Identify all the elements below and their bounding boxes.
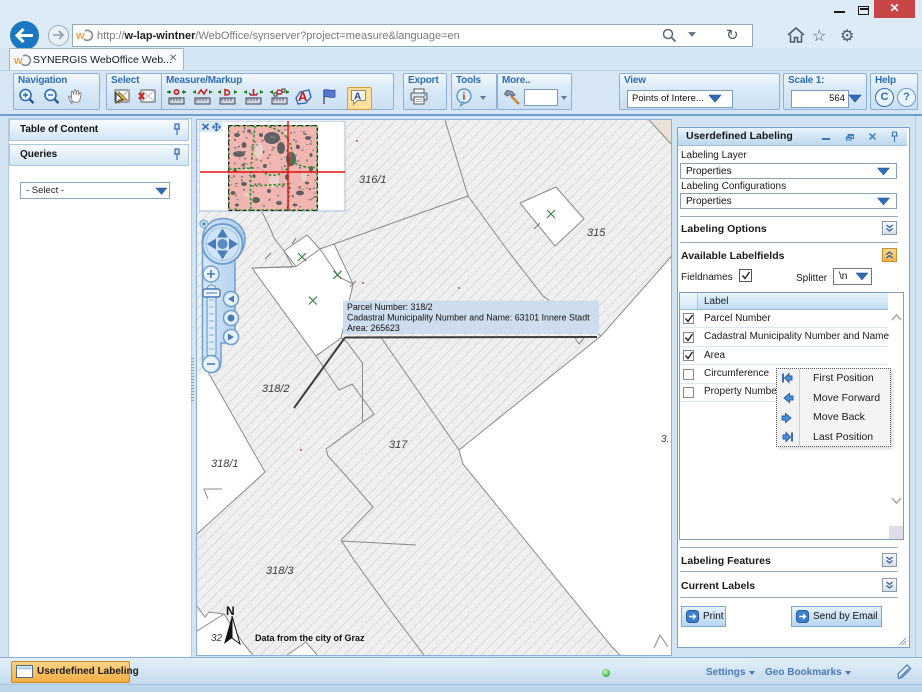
svg-text:Cadastral Municipality Number: Cadastral Municipality Number and Name: …	[347, 313, 590, 323]
svg-text:w: w	[76, 30, 85, 42]
svg-text:Parcel Number: 318/2: Parcel Number: 318/2	[347, 302, 433, 312]
svg-text:3.: 3.	[661, 434, 669, 445]
svg-text:32: 32	[211, 633, 223, 644]
svg-text:A: A	[298, 89, 308, 104]
svg-text:316/1: 316/1	[359, 174, 387, 186]
svg-text:317: 317	[389, 439, 408, 451]
svg-text:315: 315	[587, 227, 606, 239]
svg-text:A: A	[354, 92, 361, 103]
svg-text:Data from the city of Graz: Data from the city of Graz	[255, 633, 365, 643]
svg-text:i: i	[463, 92, 466, 103]
svg-text:Area: 265623: Area: 265623	[347, 323, 400, 333]
svg-text:318/1: 318/1	[211, 458, 239, 470]
svg-text:318/2: 318/2	[262, 383, 290, 395]
svg-text:N: N	[226, 604, 235, 618]
svg-text:318/3: 318/3	[266, 565, 294, 577]
svg-text:w: w	[14, 55, 23, 67]
